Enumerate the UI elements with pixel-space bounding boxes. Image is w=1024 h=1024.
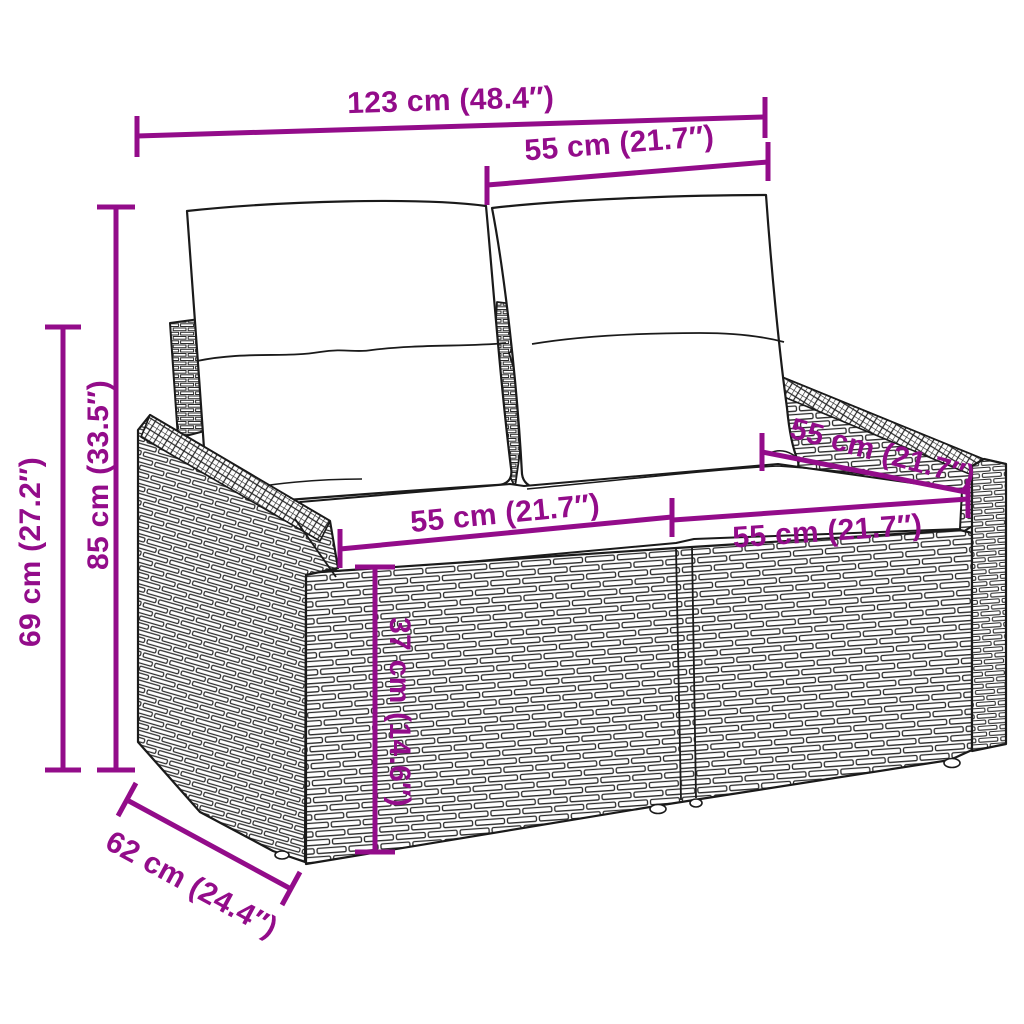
- sofa-foot: [650, 805, 666, 814]
- dim-label: 123 cm (48.4″): [347, 81, 555, 120]
- sofa-foot: [690, 799, 702, 807]
- dimension-diagram: 123 cm (48.4″) 55 cm (21.7″) 85 cm (33.5…: [0, 0, 1024, 1024]
- diagram-canvas: 123 cm (48.4″) 55 cm (21.7″) 85 cm (33.5…: [0, 0, 1024, 1024]
- dim-label: 85 cm (33.5″): [82, 380, 115, 570]
- back-cushion-right: [492, 195, 798, 487]
- back-cushion-left: [187, 201, 511, 505]
- sofa-foot: [944, 759, 960, 768]
- right-side-panel: [972, 459, 1006, 751]
- sofa-foot: [275, 851, 289, 859]
- dim-label: 69 cm (27.2″): [14, 457, 47, 647]
- dim-label: 37 cm (14.6″): [383, 617, 416, 807]
